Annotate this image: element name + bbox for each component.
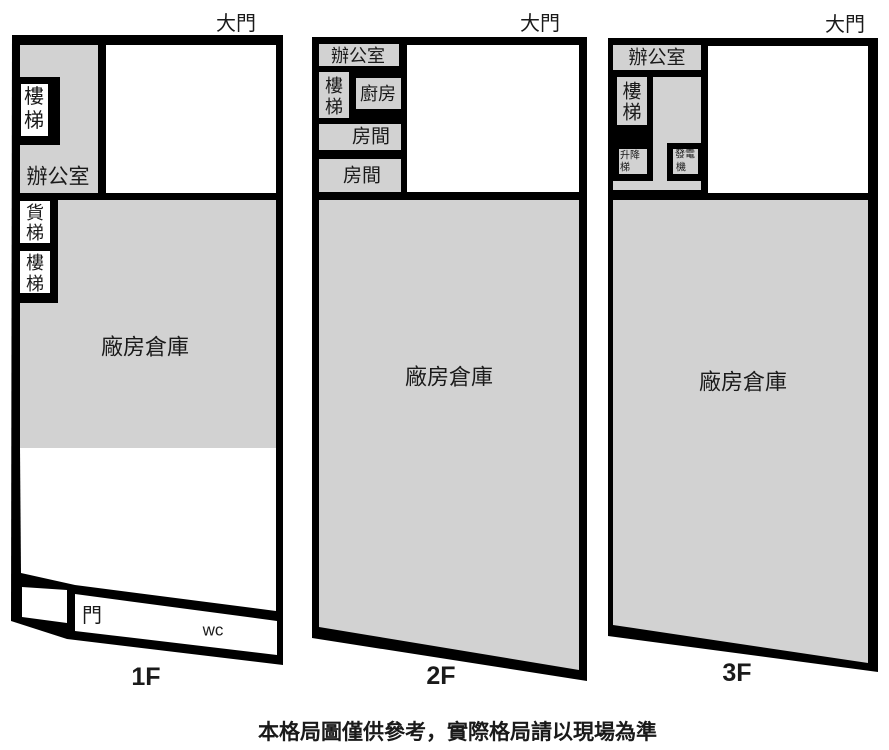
floor1-office-label: 辦公室 xyxy=(27,166,90,189)
floor1-freight-char2: 梯 xyxy=(26,223,44,243)
floor3-office-label: 辦公室 xyxy=(628,47,685,69)
floor2-stairs-char2: 梯 xyxy=(325,97,343,117)
floor1-warehouse-area xyxy=(20,200,276,448)
floor-1f: 大門 樓 梯 辦公室 貨 梯 樓 梯 廠房倉庫 門 wc 1F xyxy=(11,12,283,691)
floor2-office-label: 辦公室 xyxy=(331,46,385,66)
floor3-generator-label-line2: 機 xyxy=(676,161,686,174)
floor1-freight-char1: 貨 xyxy=(26,203,44,223)
floor3-warehouse-label: 廠房倉庫 xyxy=(699,370,787,395)
floor3-name-label: 3F xyxy=(722,659,751,687)
floorplan-canvas: 大門 樓 梯 辦公室 貨 梯 樓 梯 廠房倉庫 門 wc 1F 大門 辦公室 樓 xyxy=(0,0,889,750)
floor3-main-room xyxy=(708,46,868,193)
floor1-warehouse-label: 廠房倉庫 xyxy=(101,335,189,360)
floor1-door-label: 門 xyxy=(82,605,102,627)
floor2-kitchen-label: 廚房 xyxy=(360,83,396,104)
floor3-lift-label-line2: 梯 xyxy=(620,161,630,174)
floor3-corridor-mid xyxy=(653,143,667,181)
floor1-gate-label: 大門 xyxy=(216,12,256,35)
floor3-warehouse-area xyxy=(613,200,868,663)
floor1-stairs-lower-char1: 樓 xyxy=(26,253,44,273)
floor1-stairs-upper-char2: 梯 xyxy=(24,109,44,132)
floor2-warehouse-area xyxy=(319,200,579,670)
floor2-main-room xyxy=(407,45,579,192)
floor3-gate-label: 大門 xyxy=(825,13,865,36)
floorplan-svg: 大門 樓 梯 辦公室 貨 梯 樓 梯 廠房倉庫 門 wc 1F 大門 辦公室 樓 xyxy=(0,0,889,750)
floor3-corridor-upper xyxy=(653,77,701,143)
floor3-corridor-lower xyxy=(613,181,701,190)
floor3-stairs-char2: 梯 xyxy=(622,102,641,124)
floor-3f: 大門 辦公室 樓 梯 升降 梯 發電 機 廠房倉庫 3F xyxy=(608,13,878,687)
floor2-stairs-char1: 樓 xyxy=(325,76,343,96)
floor2-gate-label: 大門 xyxy=(520,12,560,35)
floor2-name-label: 2F xyxy=(426,662,455,690)
floor2-room1-label: 房間 xyxy=(352,126,390,148)
floor1-stairs-lower-char2: 梯 xyxy=(26,274,44,294)
floor1-main-room xyxy=(106,45,276,193)
floor3-stairs-char1: 樓 xyxy=(622,81,641,103)
floor1-corner-room xyxy=(22,587,67,623)
floor-2f: 大門 辦公室 樓 梯 廚房 房間 房間 廠房倉庫 2F xyxy=(312,12,587,690)
floor1-stairs-upper-char1: 樓 xyxy=(24,85,44,108)
floor1-name-label: 1F xyxy=(131,663,160,691)
floor3-lift-label-line1: 升降 xyxy=(620,149,640,162)
floor3-generator-label-line1: 發電 xyxy=(675,148,695,161)
floor2-warehouse-label: 廠房倉庫 xyxy=(405,365,493,390)
floor2-room2-label: 房間 xyxy=(343,165,381,187)
floor1-wc-label: wc xyxy=(202,621,224,640)
disclaimer-text: 本格局圖僅供參考，實際格局請以現場為準 xyxy=(0,716,889,746)
